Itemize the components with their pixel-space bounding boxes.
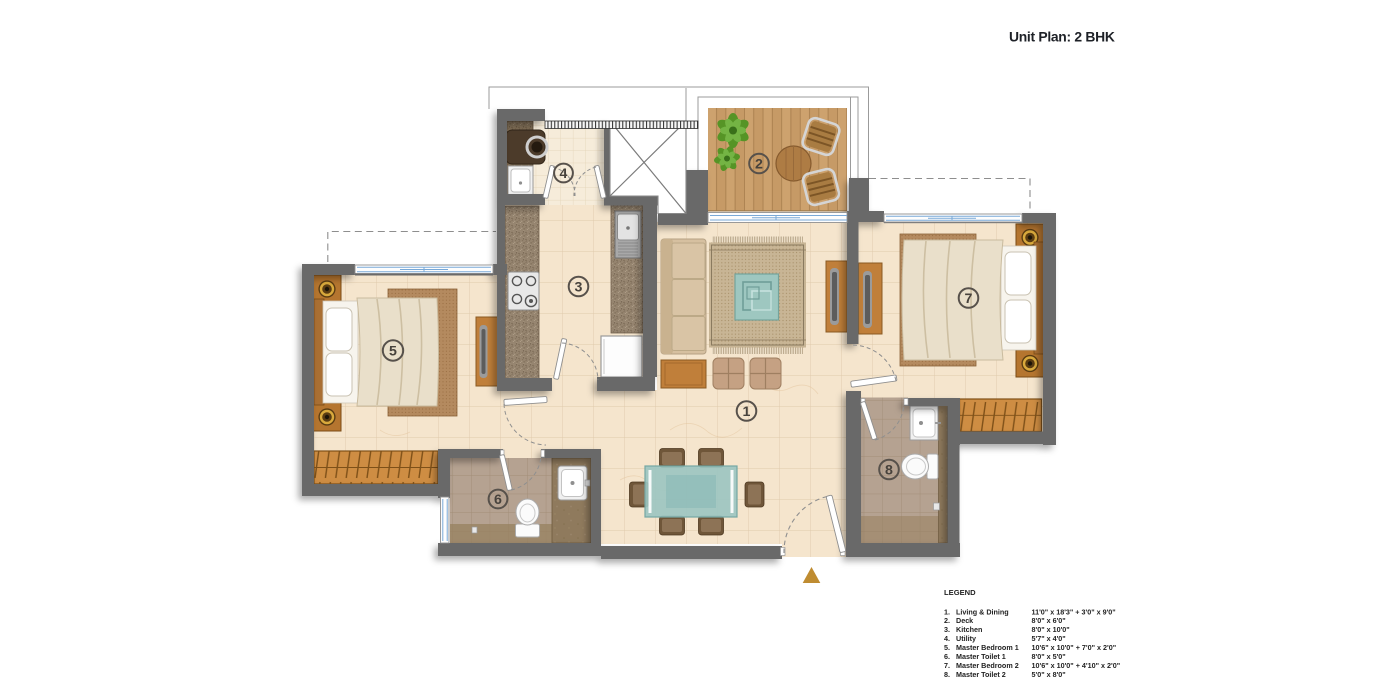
svg-text:8'0" x 5'0": 8'0" x 5'0" [1032,652,1066,661]
svg-text:Living & Dining: Living & Dining [956,607,1009,616]
svg-text:1: 1 [743,404,751,420]
svg-text:Master Bedroom 2: Master Bedroom 2 [956,661,1019,670]
svg-text:8'0" x 6'0": 8'0" x 6'0" [1032,616,1066,625]
svg-text:Master Toilet 1: Master Toilet 1 [956,652,1006,661]
svg-text:1.: 1. [944,607,950,616]
svg-text:10'6" x 10'0" + 4'10" x 2'0": 10'6" x 10'0" + 4'10" x 2'0" [1032,661,1121,670]
svg-text:4: 4 [560,166,568,182]
svg-text:11'0" x 18'3" + 3'0" x 9'0": 11'0" x 18'3" + 3'0" x 9'0" [1032,607,1116,616]
svg-text:10'6" x 10'0" + 7'0" x 2'0": 10'6" x 10'0" + 7'0" x 2'0" [1032,643,1117,652]
svg-text:Utility: Utility [956,634,976,643]
svg-text:5'7" x 4'0": 5'7" x 4'0" [1032,634,1066,643]
svg-text:8.: 8. [944,670,950,679]
svg-text:6.: 6. [944,652,950,661]
svg-text:8: 8 [885,463,893,479]
svg-text:7.: 7. [944,661,950,670]
svg-text:5: 5 [389,344,397,360]
svg-text:4.: 4. [944,634,950,643]
svg-text:2: 2 [755,157,763,173]
svg-text:Deck: Deck [956,616,973,625]
svg-text:7: 7 [965,291,973,307]
svg-text:3: 3 [575,280,583,296]
svg-text:3.: 3. [944,625,950,634]
svg-text:6: 6 [494,492,502,508]
svg-text:8'0" x 10'0": 8'0" x 10'0" [1032,625,1070,634]
svg-text:2.: 2. [944,616,950,625]
svg-text:LEGEND: LEGEND [944,588,976,597]
svg-text:5'0" x 8'0": 5'0" x 8'0" [1032,670,1066,679]
svg-text:5.: 5. [944,643,950,652]
svg-text:Unit Plan: 2 BHK: Unit Plan: 2 BHK [1009,29,1115,45]
svg-text:Master Toilet 2: Master Toilet 2 [956,670,1006,679]
svg-text:Kitchen: Kitchen [956,625,982,634]
svg-text:Master Bedroom 1: Master Bedroom 1 [956,643,1019,652]
